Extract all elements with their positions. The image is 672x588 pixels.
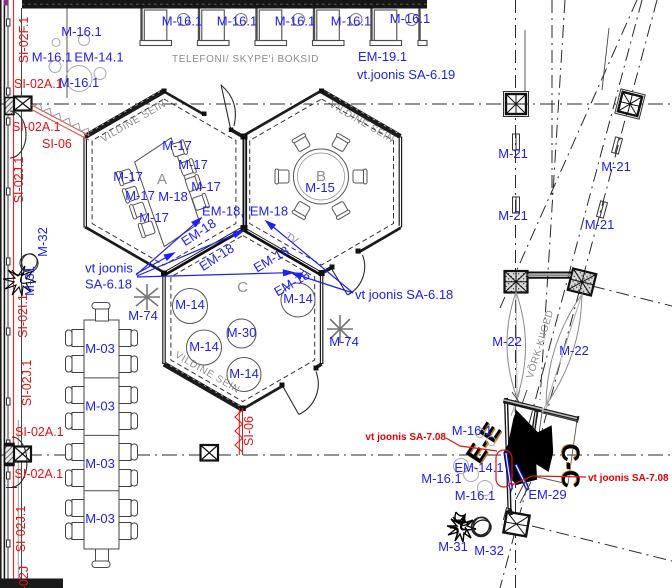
svg-text:M-17: M-17 bbox=[162, 138, 192, 153]
svg-text:M-03: M-03 bbox=[85, 511, 115, 526]
svg-text:SI-02A.1: SI-02A.1 bbox=[12, 120, 61, 134]
svg-text:M-21: M-21 bbox=[498, 146, 528, 161]
svg-text:SI-06: SI-06 bbox=[42, 137, 72, 151]
svg-text:M-16.1: M-16.1 bbox=[61, 24, 101, 39]
svg-text:C: C bbox=[237, 279, 248, 296]
svg-text:SI-02A.1: SI-02A.1 bbox=[14, 77, 63, 91]
svg-text:M-14: M-14 bbox=[229, 366, 259, 381]
svg-text:M-32: M-32 bbox=[35, 227, 50, 257]
svg-text:M-21: M-21 bbox=[601, 159, 631, 174]
svg-text:M-03: M-03 bbox=[85, 399, 115, 414]
svg-text:M-22: M-22 bbox=[559, 343, 589, 358]
svg-text:M-17: M-17 bbox=[178, 157, 208, 172]
svg-text:vt joonis SA-7.08: vt joonis SA-7.08 bbox=[365, 432, 446, 443]
svg-text:M-03: M-03 bbox=[85, 341, 115, 356]
svg-text:M-21: M-21 bbox=[585, 217, 615, 232]
svg-text:M-14: M-14 bbox=[189, 339, 219, 354]
svg-text:M-18: M-18 bbox=[158, 189, 188, 204]
svg-text:EM-14.1: EM-14.1 bbox=[74, 50, 123, 65]
svg-text:M-32: M-32 bbox=[474, 543, 504, 558]
svg-text:M-31: M-31 bbox=[438, 539, 468, 554]
svg-text:M-16.1: M-16.1 bbox=[217, 14, 257, 29]
svg-text:TELEFONI/ SKYPE'i BOKSID: TELEFONI/ SKYPE'i BOKSID bbox=[172, 54, 319, 65]
svg-text:M-31: M-31 bbox=[22, 266, 37, 296]
svg-text:M-22: M-22 bbox=[492, 334, 522, 349]
svg-text:M-16.1: M-16.1 bbox=[59, 75, 99, 90]
svg-text:SI-02F.1: SI-02F.1 bbox=[17, 17, 31, 64]
svg-text:vt joonis SA-6.18: vt joonis SA-6.18 bbox=[355, 287, 453, 302]
svg-text:M-74: M-74 bbox=[128, 308, 158, 323]
svg-text:EM-14.1: EM-14.1 bbox=[454, 460, 503, 475]
svg-text:M-74: M-74 bbox=[329, 334, 359, 349]
svg-text:M-16.1: M-16.1 bbox=[162, 14, 202, 29]
svg-text:M-17: M-17 bbox=[125, 188, 155, 203]
svg-text:SI-02A.1: SI-02A.1 bbox=[15, 467, 64, 481]
svg-text:vt joonis: vt joonis bbox=[85, 261, 133, 276]
svg-text:M-21: M-21 bbox=[498, 208, 528, 223]
svg-text:M-14: M-14 bbox=[283, 291, 313, 306]
svg-text:SI-02J.1: SI-02J.1 bbox=[14, 506, 28, 553]
svg-text:M-14: M-14 bbox=[175, 297, 205, 312]
svg-text:M-16.1: M-16.1 bbox=[32, 50, 72, 65]
svg-text:A: A bbox=[157, 171, 167, 188]
svg-text:M-16.1: M-16.1 bbox=[421, 471, 461, 486]
svg-text:M-30: M-30 bbox=[227, 325, 257, 340]
svg-text:SI-02J.1: SI-02J.1 bbox=[20, 360, 34, 407]
svg-text:M-17: M-17 bbox=[139, 210, 169, 225]
svg-text:EM-29: EM-29 bbox=[528, 487, 566, 502]
svg-text:vt joonis SA-7.08: vt joonis SA-7.08 bbox=[588, 473, 669, 484]
svg-text:SI-02I.1: SI-02I.1 bbox=[16, 294, 30, 338]
svg-text:SI-02J: SI-02J bbox=[17, 566, 31, 588]
svg-text:M-16.1: M-16.1 bbox=[275, 14, 315, 29]
svg-text:vt.joonis SA-6.19: vt.joonis SA-6.19 bbox=[357, 67, 455, 82]
svg-text:M-16.1: M-16.1 bbox=[452, 423, 492, 438]
svg-text:M-16.1: M-16.1 bbox=[331, 14, 371, 29]
svg-text:M-16.1: M-16.1 bbox=[455, 488, 495, 503]
svg-text:C-C: C-C bbox=[556, 444, 584, 488]
svg-text:M-16.1: M-16.1 bbox=[390, 11, 430, 26]
svg-text:EM-19.1: EM-19.1 bbox=[358, 49, 407, 64]
svg-text:SI-02J.1: SI-02J.1 bbox=[12, 157, 26, 204]
svg-text:B: B bbox=[316, 168, 326, 185]
svg-text:SI-02A.1: SI-02A.1 bbox=[15, 425, 64, 439]
svg-text:SA-6.18: SA-6.18 bbox=[85, 277, 132, 292]
svg-text:SI-06: SI-06 bbox=[242, 416, 256, 446]
svg-text:M-17: M-17 bbox=[191, 179, 221, 194]
svg-text:M-17: M-17 bbox=[113, 169, 143, 184]
svg-text:EM-18: EM-18 bbox=[250, 204, 288, 219]
svg-text:M-03: M-03 bbox=[85, 456, 115, 471]
